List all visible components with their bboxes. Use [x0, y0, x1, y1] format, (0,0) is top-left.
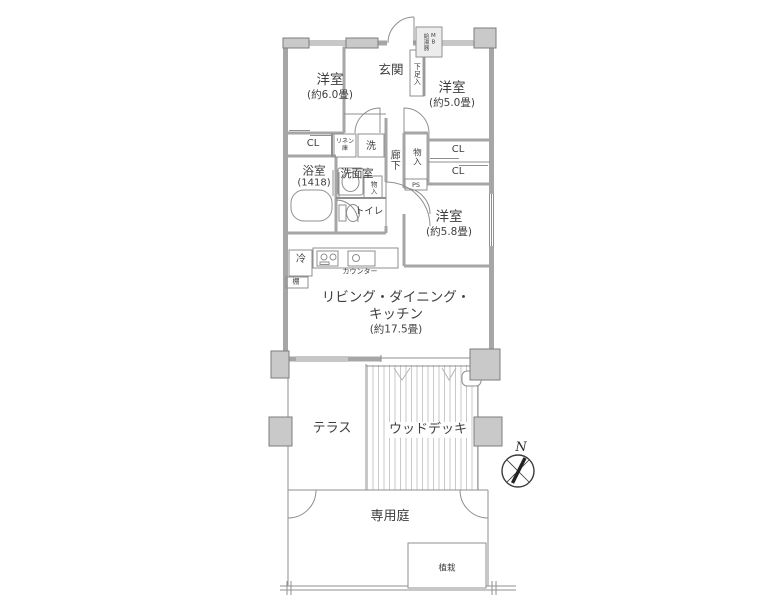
room-label-private-garden: 専用庭 [370, 509, 409, 525]
ldk-size: (約17.5畳) [322, 323, 471, 336]
bathroom-name: 浴室 [297, 164, 330, 178]
room-label-toilet: トイレ [355, 206, 384, 218]
label-closet-bed2-upper: CL [452, 144, 465, 157]
ldk-name-line1: リビング・ダイニング・ [322, 290, 471, 307]
room-label-bedroom2: 洋室 (約5.0畳) [429, 80, 475, 110]
bedroom1-name: 洋室 [307, 72, 353, 89]
room-label-terrace: テラス [313, 421, 352, 437]
compass-north-label: N [515, 440, 526, 456]
label-counter: カウンター [343, 268, 378, 277]
label-shoe-cabinet: 下足入 [413, 63, 422, 86]
label-shelf: 棚 [293, 278, 300, 287]
label-storage-wash: 物入 [369, 181, 377, 195]
room-label-bedroom3: 洋室 (約5.8畳) [426, 209, 472, 239]
label-closet-bed2-lower: CL [452, 166, 465, 179]
meter-box-sub: 給湯器 [422, 33, 429, 51]
room-label-bathroom: 浴室 (1418) [297, 164, 330, 191]
room-label-bedroom1: 洋室 (約6.0畳) [307, 72, 353, 102]
room-label-ldk: リビング・ダイニング・ キッチン (約17.5畳) [322, 290, 471, 337]
room-label-entrance: 玄関 [378, 62, 403, 78]
label-laundry: 洗 [366, 141, 376, 154]
label-pipe-space: PS [412, 180, 420, 188]
room-label-wood-deck: ウッドデッキ [386, 422, 470, 438]
label-meter-box: 給湯器 MB [422, 33, 437, 51]
ldk-name-line2: キッチン [322, 306, 471, 323]
meter-box-name: MB [430, 33, 437, 46]
bedroom3-size: (約5.8畳) [426, 226, 472, 239]
label-storage-hall: 物入 [411, 148, 422, 166]
bedroom2-name: 洋室 [429, 80, 475, 97]
room-label-hallway: 廊下 [387, 150, 400, 171]
label-linen: リネン庫 [335, 139, 355, 153]
label-planting: 植栽 [438, 564, 455, 575]
compass-icon [502, 455, 534, 487]
label-closet-bed1: CL [307, 138, 320, 151]
bedroom3-name: 洋室 [426, 209, 472, 226]
bedroom1-size: (約6.0畳) [307, 89, 353, 102]
label-refrigerator: 冷 [296, 254, 306, 267]
bedroom2-size: (約5.0畳) [429, 97, 475, 110]
bathroom-size: (1418) [297, 178, 330, 191]
floorplan-canvas: 洋室 (約6.0畳) 玄関 下足入 給湯器 MB 洋室 (約5.0畳) CL 浴… [0, 0, 768, 614]
room-label-washroom: 洗面室 [341, 167, 374, 181]
